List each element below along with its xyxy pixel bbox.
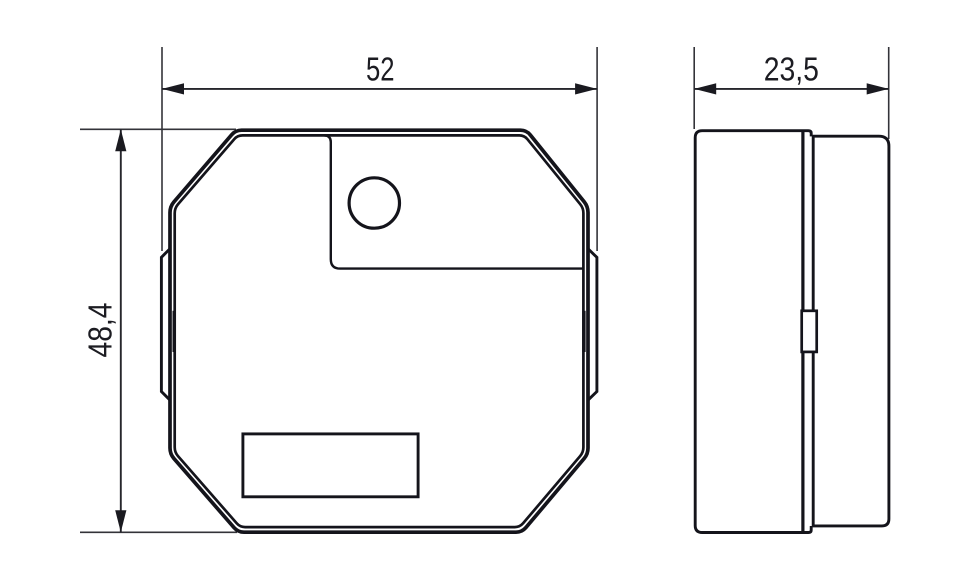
svg-text:23,5: 23,5 xyxy=(764,51,819,88)
svg-text:48,4: 48,4 xyxy=(83,303,120,358)
svg-text:52: 52 xyxy=(366,52,395,89)
